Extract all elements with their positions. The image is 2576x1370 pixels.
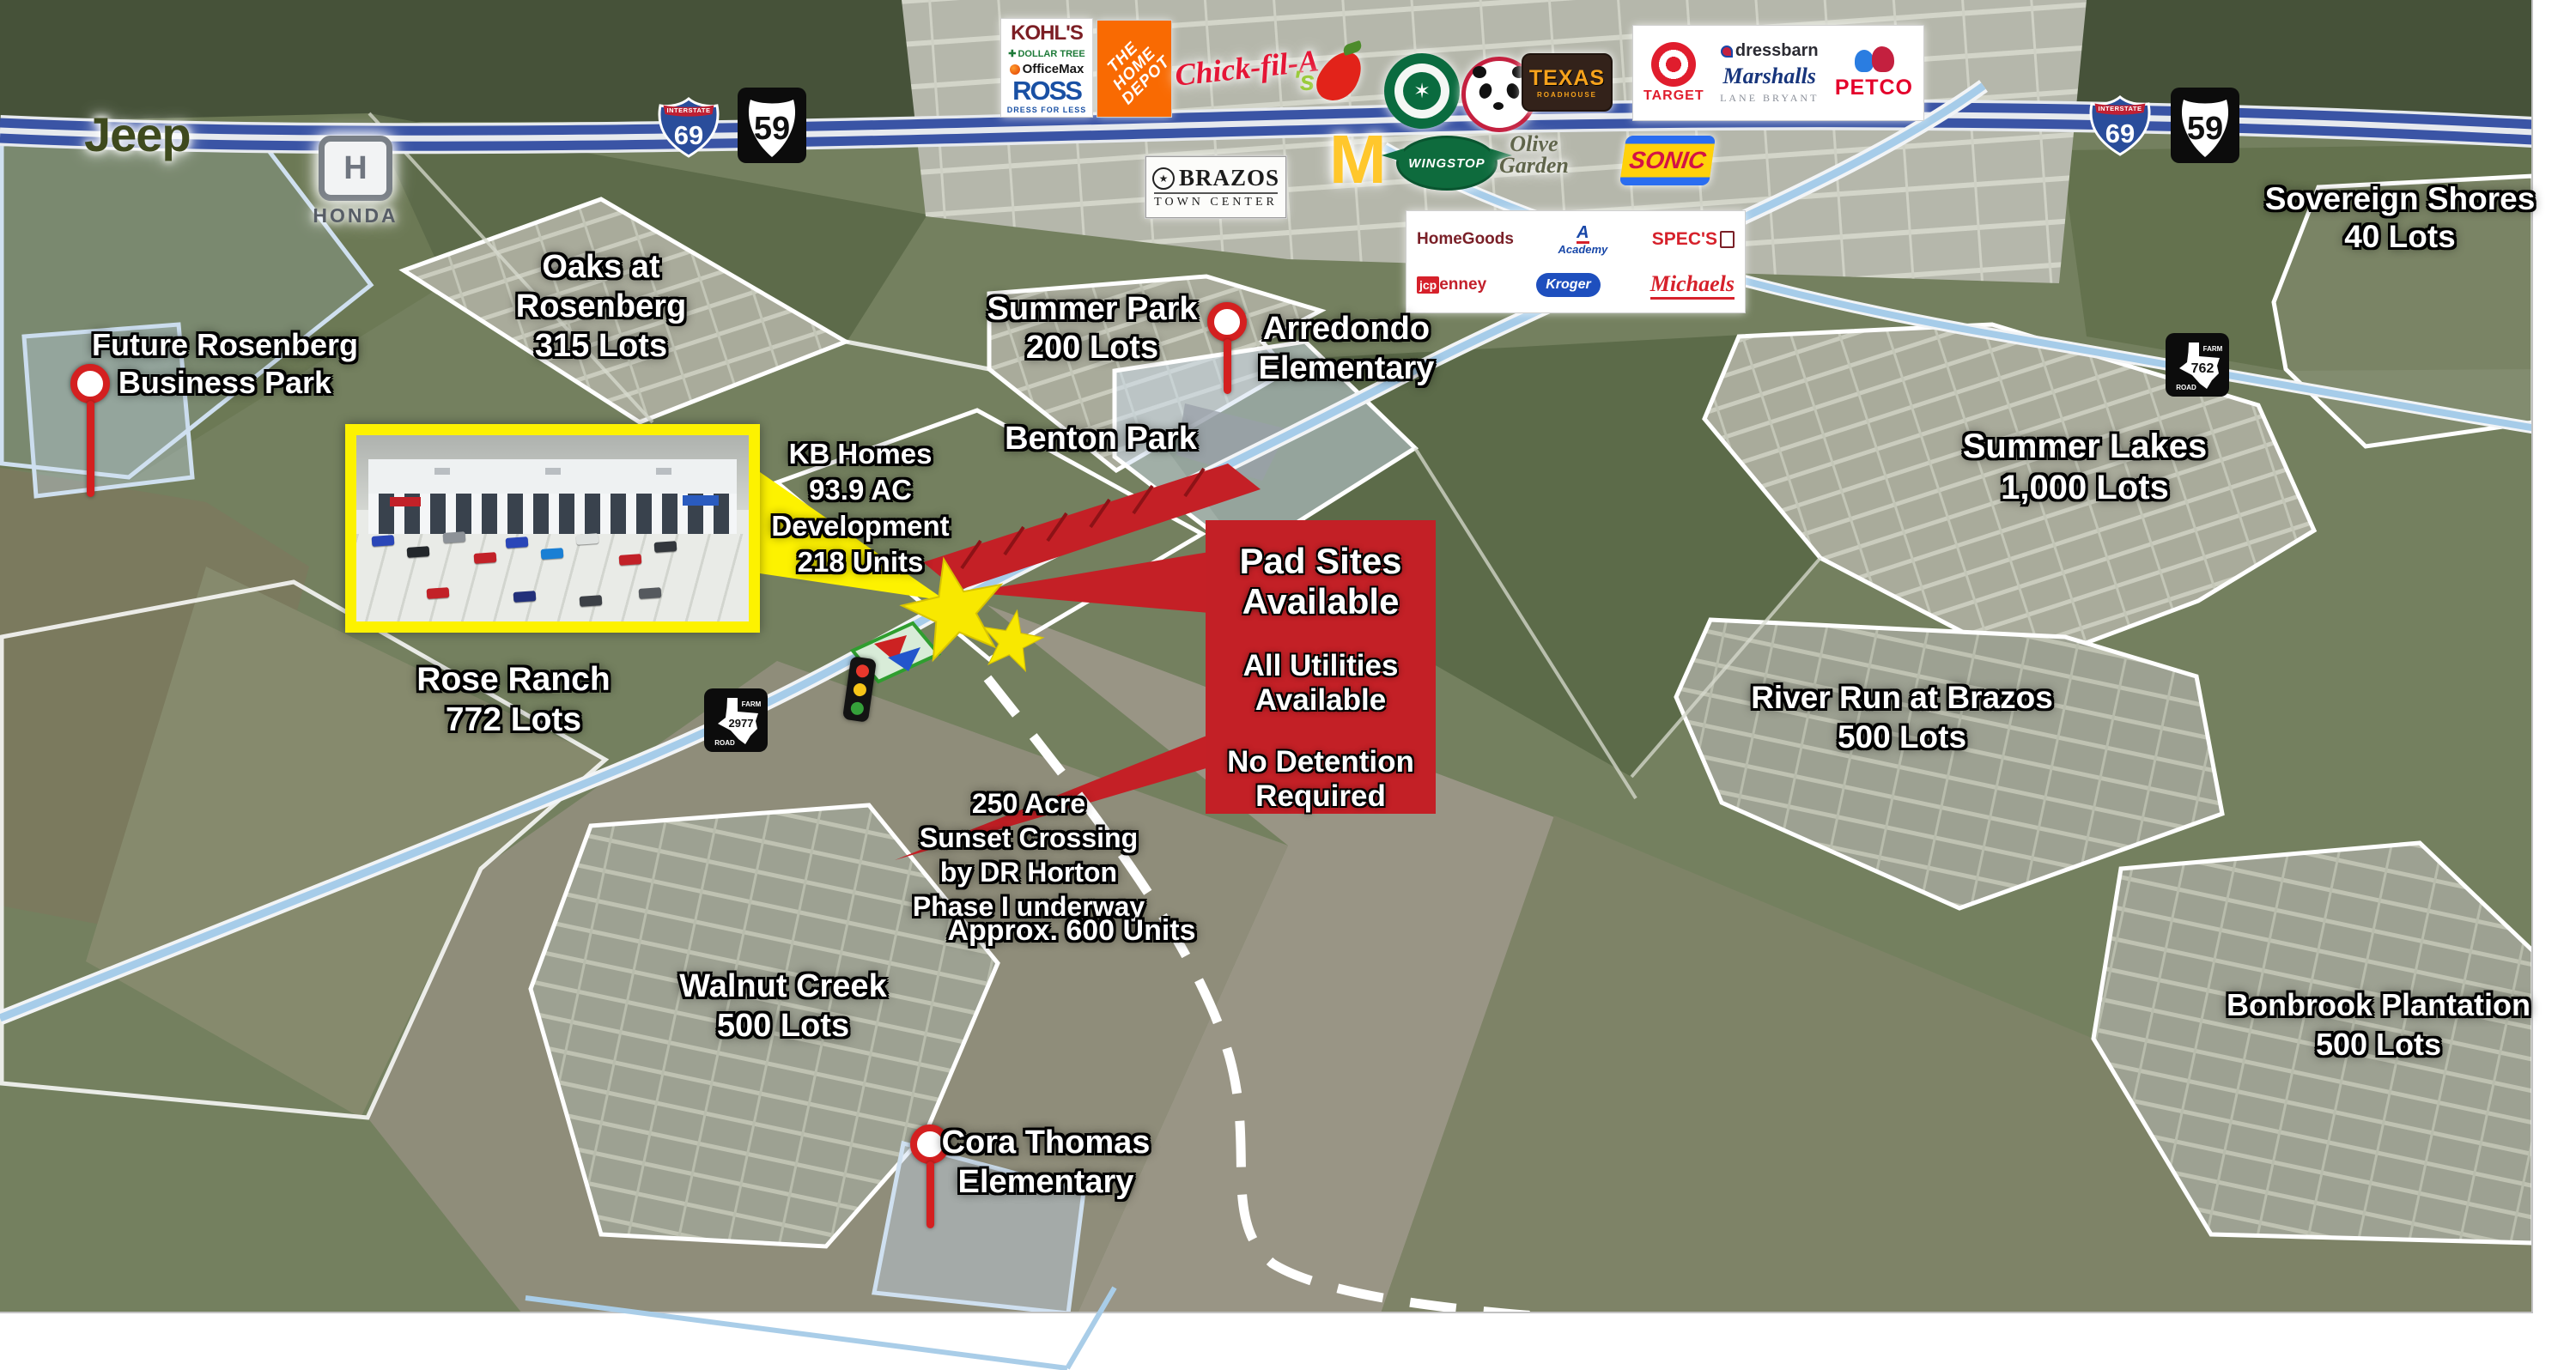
petco-logo: PETCO bbox=[1835, 46, 1913, 100]
label-sunset-crossing: 250 AcreSunset Crossingby DR HortonPhase… bbox=[913, 786, 1145, 924]
retail-card-target-anchor: TARGET dressbarn Marshalls LANE BRYANT P… bbox=[1633, 26, 1923, 120]
car-icon bbox=[580, 595, 603, 607]
lane-bryant-logo: LANE BRYANT bbox=[1720, 92, 1819, 105]
marshalls-logo: Marshalls bbox=[1723, 64, 1816, 89]
label-summer-park: Summer Park200 Lots bbox=[987, 290, 1197, 367]
inset-shopping-center-building bbox=[368, 459, 738, 541]
callout-heading: Pad Sites Available bbox=[1239, 541, 1401, 621]
olive-garden-logo: Olive Garden bbox=[1499, 134, 1569, 176]
kohls-logo: KOHL'S bbox=[1011, 21, 1083, 45]
pin-stem bbox=[1224, 339, 1231, 394]
car-icon bbox=[372, 535, 395, 547]
car-icon bbox=[540, 548, 563, 560]
callout-utilities: All Utilities Available bbox=[1243, 649, 1399, 718]
kroger-logo: Kroger bbox=[1536, 273, 1600, 297]
texas-roadhouse-logo: TEXAS ROADHOUSE bbox=[1522, 53, 1613, 112]
svg-text:59: 59 bbox=[754, 111, 790, 147]
label-rose-ranch: Rose Ranch772 Lots bbox=[416, 659, 610, 740]
fm-762-shield: FARM ROAD 762 bbox=[2166, 333, 2229, 397]
map-pin-arredondo-elementary bbox=[1207, 302, 1247, 394]
target-logo: TARGET bbox=[1643, 42, 1704, 104]
michaels-logo: Michaels bbox=[1650, 271, 1735, 300]
svg-text:ROAD: ROAD bbox=[2176, 384, 2196, 391]
label-future-rosenberg-business-park: Future RosenbergBusiness Park bbox=[92, 326, 358, 402]
car-icon bbox=[654, 541, 677, 553]
pad-sites-callout: Pad Sites Available All Utilities Availa… bbox=[1206, 520, 1436, 814]
svg-text:FARM: FARM bbox=[2203, 345, 2223, 353]
label-benton-park: Benton Park bbox=[1005, 419, 1197, 458]
car-icon bbox=[576, 533, 599, 545]
starbucks-logo-icon: ✶ bbox=[1384, 53, 1460, 129]
interstate-69-shield-left: INTERSTATE 69 bbox=[655, 96, 722, 160]
pin-stem bbox=[87, 401, 94, 497]
dressbarn-icon bbox=[1721, 45, 1733, 58]
label-summer-lakes: Summer Lakes1,000 Lots bbox=[1963, 426, 2208, 508]
svg-text:2977: 2977 bbox=[729, 717, 754, 730]
pin-stem bbox=[927, 1161, 934, 1228]
jeep-logo: Jeep bbox=[84, 106, 191, 162]
officemax-logo: OfficeMax bbox=[1010, 62, 1084, 76]
label-cora-thomas-elementary: Cora ThomasElementary bbox=[942, 1123, 1151, 1202]
site-photo-inset bbox=[345, 424, 760, 633]
petco-dog-cat-icon bbox=[1853, 46, 1894, 74]
fm-2977-shield: FARM ROAD 2977 bbox=[704, 688, 768, 752]
callout-detention: No Detention Required bbox=[1227, 745, 1414, 814]
honda-dealership-logo: H HONDA bbox=[311, 136, 400, 227]
chilis-s-text: 's bbox=[1293, 65, 1315, 97]
brazos-town-center-sign: ★ BRAZOS TOWN CENTER bbox=[1145, 156, 1286, 218]
label-oaks-at-rosenberg: Oaks atRosenberg315 Lots bbox=[516, 247, 686, 366]
us-59-shield-left: 59 bbox=[738, 88, 806, 163]
svg-text:69: 69 bbox=[674, 120, 703, 150]
label-sunset-crossing-units: Approx. 600 Units bbox=[947, 913, 1195, 948]
brazos-star-icon: ★ bbox=[1152, 167, 1175, 190]
target-bullseye-icon bbox=[1651, 42, 1696, 87]
us-59-shield-right: 59 bbox=[2171, 88, 2239, 163]
dollar-tree-logo: ✚ DOLLAR TREE bbox=[1008, 48, 1084, 59]
jcpenney-logo: jcp enney bbox=[1417, 276, 1486, 294]
svg-text:59: 59 bbox=[2187, 111, 2223, 147]
pin-head-icon bbox=[1207, 302, 1247, 342]
interstate-69-shield-right: INTERSTATE 69 bbox=[2087, 94, 2154, 158]
dollar-tree-plus-icon: ✚ bbox=[1008, 48, 1016, 59]
ross-tagline: DRESS FOR LESS bbox=[1007, 106, 1087, 114]
ross-logo: ROSS bbox=[1012, 79, 1081, 103]
chilis-logo: 's bbox=[1293, 43, 1372, 112]
car-icon bbox=[513, 591, 536, 603]
car-icon bbox=[505, 536, 528, 549]
svg-text:FARM: FARM bbox=[742, 700, 762, 708]
car-icon bbox=[427, 587, 450, 599]
specs-bag-icon bbox=[1720, 231, 1735, 248]
car-icon bbox=[639, 587, 662, 599]
dressbarn-logo: dressbarn bbox=[1721, 41, 1819, 61]
academy-logo: A Academy bbox=[1558, 224, 1607, 255]
label-arredondo-elementary: ArredondoElementary bbox=[1259, 309, 1435, 388]
car-icon bbox=[474, 552, 497, 564]
retail-card-home-depot: THE HOME DEPOT bbox=[1097, 21, 1171, 117]
svg-text:INTERSTATE: INTERSTATE bbox=[2099, 105, 2142, 112]
label-bonbrook-plantation: Bonbrook Plantation500 Lots bbox=[2227, 985, 2530, 1064]
honda-h-emblem-icon: H bbox=[319, 136, 392, 201]
svg-text:762: 762 bbox=[2191, 361, 2215, 376]
car-icon bbox=[407, 546, 430, 558]
retail-card-kohls-strip: KOHL'S ✚ DOLLAR TREE OfficeMax ROSS DRES… bbox=[1001, 19, 1092, 117]
honda-wordmark: HONDA bbox=[313, 204, 398, 227]
storefront-sign-blue bbox=[683, 495, 719, 506]
sonic-logo: SONIC bbox=[1619, 136, 1716, 185]
svg-text:INTERSTATE: INTERSTATE bbox=[667, 106, 711, 114]
homegoods-logo: HomeGoods bbox=[1417, 230, 1514, 249]
home-depot-logo: THE HOME DEPOT bbox=[1097, 21, 1171, 117]
chilis-pepper-icon bbox=[1310, 44, 1369, 108]
svg-text:ROAD: ROAD bbox=[714, 739, 735, 747]
svg-text:69: 69 bbox=[2105, 118, 2135, 149]
label-kb-homes-development: KB Homes93.9 ACDevelopment218 Units bbox=[771, 436, 949, 580]
aerial-marketing-map: INTERSTATE 69 59 INTERSTATE 69 59 FARM R… bbox=[0, 0, 2576, 1370]
wingstop-logo: WINGSTOP bbox=[1396, 136, 1498, 191]
mcdonalds-arches-icon: M bbox=[1329, 125, 1387, 194]
label-river-run-at-brazos: River Run at Brazos500 Lots bbox=[1751, 678, 2053, 757]
label-sovereign-shores: Sovereign Shores40 Lots bbox=[2265, 180, 2536, 256]
car-icon bbox=[442, 531, 465, 543]
specs-logo: SPEC'S bbox=[1652, 229, 1735, 250]
label-walnut-creek: Walnut Creek500 Lots bbox=[679, 967, 886, 1046]
storefront-sign-red bbox=[390, 497, 421, 506]
starbucks-siren-icon: ✶ bbox=[1403, 72, 1441, 110]
car-icon bbox=[619, 554, 642, 566]
retail-card-homegoods-row: HomeGoods A Academy SPEC'S jcp enney Kro… bbox=[1406, 211, 1745, 312]
officemax-ball-icon bbox=[1010, 64, 1020, 75]
